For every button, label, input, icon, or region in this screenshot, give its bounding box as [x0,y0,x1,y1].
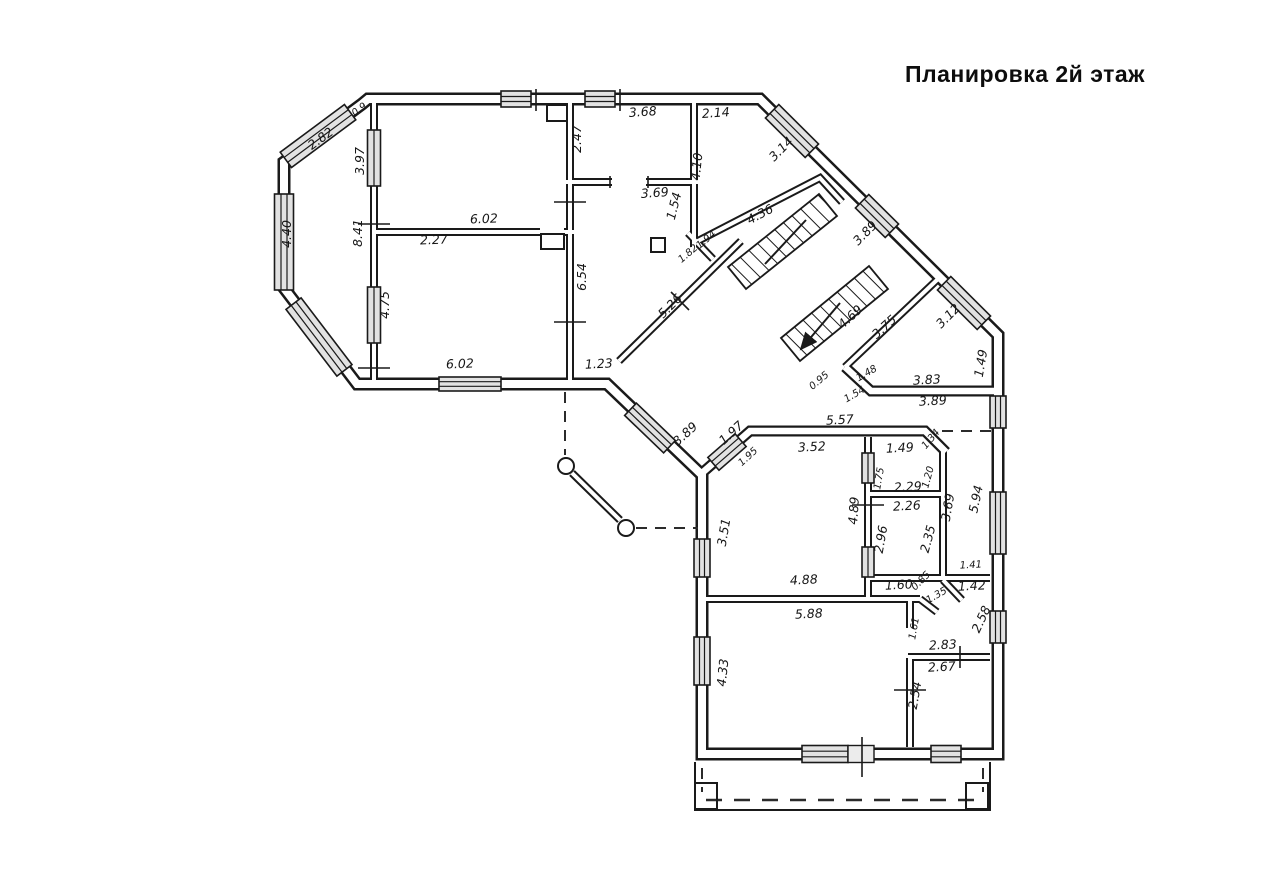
dimension-label: 1.20 [920,465,936,489]
page-title: Планировка 2й этаж [905,61,1145,87]
dimension-label: 2.29 [893,478,922,494]
dimension-label: 2.26 [892,497,921,513]
dimension-label: 1.54 [842,385,867,406]
stair-flight-upper [728,194,837,289]
dimension-label: 1.23 [584,355,613,371]
window-icon [439,377,501,391]
dimension-label: 6.54 [574,263,589,291]
column-icon [558,458,574,474]
window-icon [368,130,381,186]
dimension-label: 2.47 [569,125,584,153]
porch-column [695,783,717,809]
wall-notch [547,105,567,121]
dimension-label: 3.69 [640,184,669,201]
dimension-label: 6.02 [446,356,474,372]
terrace [558,392,992,536]
dimension-label: 3.68 [628,103,657,120]
dimension-label: 3.52 [797,438,826,454]
dimension-label: 4.88 [789,571,818,587]
dimension-label: 2.14 [701,104,730,121]
dimension-label: 8.41 [350,219,365,247]
window-icon [990,611,1006,643]
floor-plan-page: Планировка 2й этаж 2.820.93.978.414.404.… [0,0,1280,883]
dimension-label: 2.67 [927,658,956,674]
window-icon [625,403,676,453]
dimension-label: 4.89 [845,496,862,525]
window-icon [990,396,1006,428]
dimension-label: 4.40 [279,220,294,248]
dimension-label: 3.89 [918,392,947,408]
dimension-label: 1.49 [971,348,991,378]
door-jamb [541,234,564,249]
dimension-label: 1.35 [924,586,949,607]
dimension-label: 3.83 [912,371,941,387]
window-icon [931,746,961,763]
dimension-label: 2.83 [928,636,957,652]
window-icon [990,492,1006,554]
dimension-label: 5.88 [794,605,823,621]
dimension-label: 1.42 [957,577,986,593]
dimension-label: 5.94 [965,484,985,514]
dimension-label: 3.97 [352,147,367,175]
dimension-label: 1.49 [885,439,914,455]
window-icon [694,637,710,685]
column-icon [618,520,634,536]
interior-walls [374,95,990,747]
dimension-label: 4.75 [377,291,392,319]
porch [695,762,990,810]
door-opening [848,746,874,763]
dimension-label: 6.02 [470,211,498,227]
duct-symbol [651,238,665,252]
window-icon [585,91,615,107]
porch-column [966,783,988,809]
dimension-label: 2.96 [871,524,891,554]
window-icon [286,298,352,376]
window-icon [501,91,531,107]
dimension-label: 4.33 [714,658,732,687]
window-icon [862,453,874,483]
dimension-label: 5.57 [825,411,854,427]
dimension-label: 4.10 [688,152,706,181]
dimension-label: 2.27 [420,232,448,248]
window-icon [802,746,848,763]
dimension-label: 2.35 [917,523,939,554]
dimension-label: 3.51 [714,517,734,547]
floor-plan-svg: Планировка 2й этаж 2.820.93.978.414.404.… [0,0,1280,883]
dimension-label: 1.41 [959,559,982,571]
window-icon [694,539,710,577]
dimension-label: 0.95 [807,370,831,393]
